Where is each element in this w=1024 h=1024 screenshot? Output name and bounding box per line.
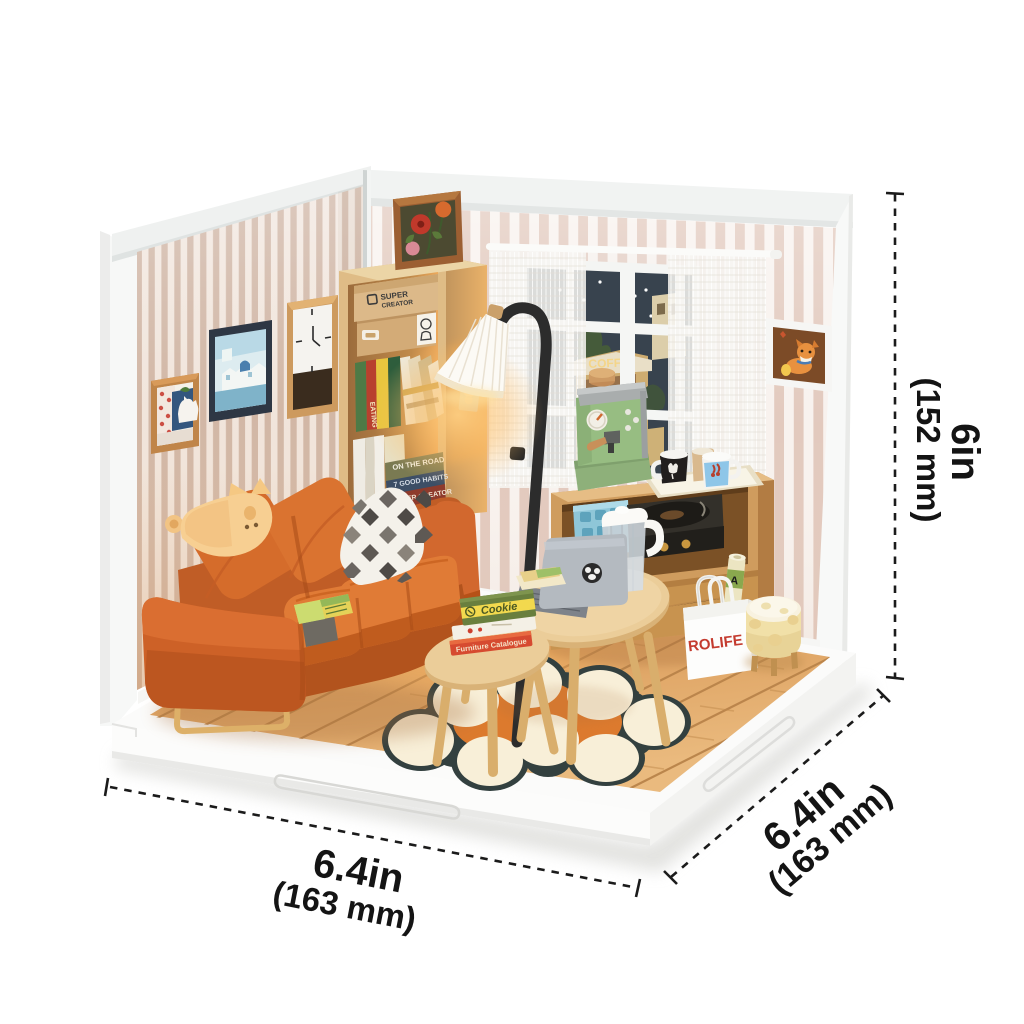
svg-text:6in: 6in xyxy=(943,423,987,481)
svg-text:(152 mm): (152 mm) xyxy=(910,378,947,523)
